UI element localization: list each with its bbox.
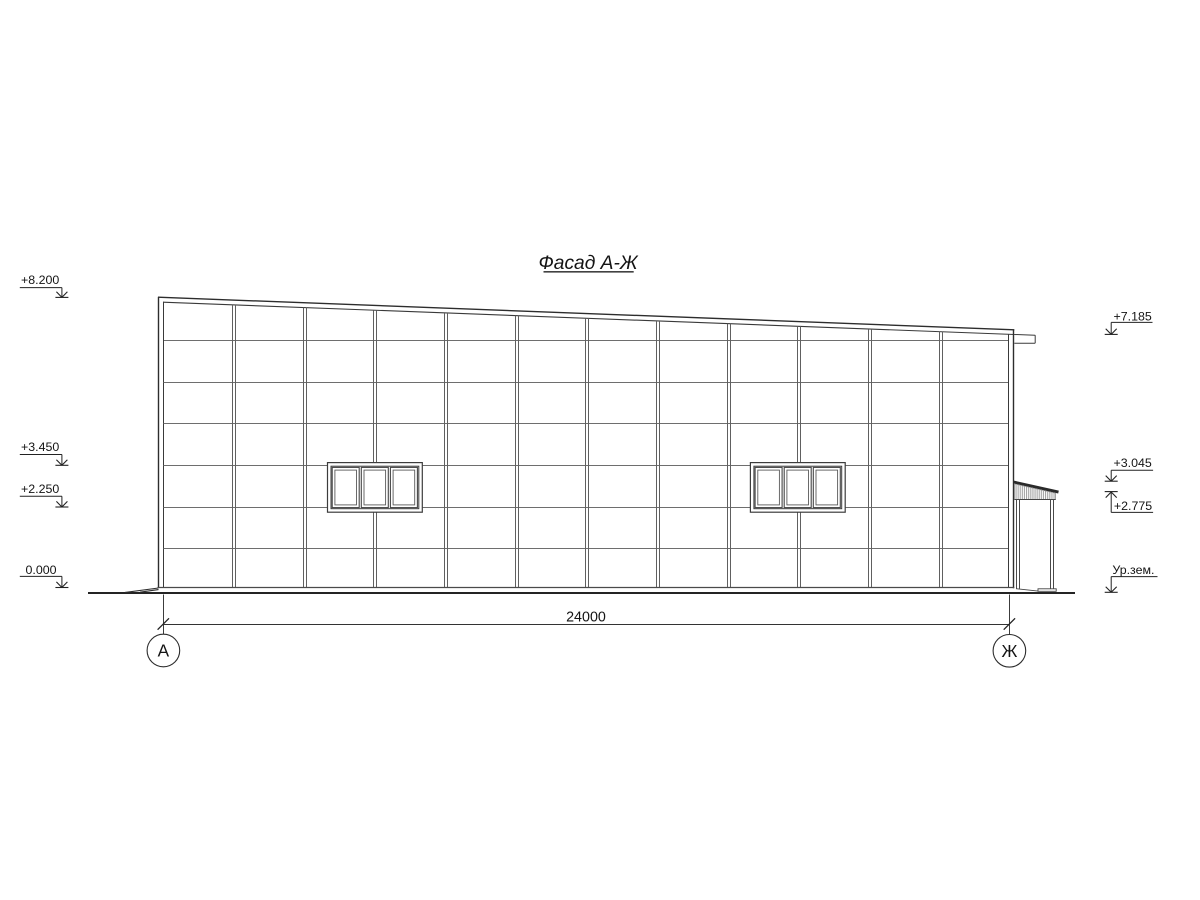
svg-text:+3.045: +3.045 (1114, 456, 1152, 470)
svg-text:Ур.зем.: Ур.зем. (1112, 563, 1154, 577)
svg-text:+3.450: +3.450 (21, 440, 59, 454)
svg-text:+8.200: +8.200 (21, 273, 59, 287)
svg-text:24000: 24000 (566, 609, 606, 625)
svg-text:Ж: Ж (1001, 641, 1017, 661)
svg-text:0.000: 0.000 (26, 563, 57, 577)
svg-text:Фасад А-Ж: Фасад А-Ж (539, 253, 639, 274)
svg-text:А: А (158, 641, 170, 661)
svg-text:+2.775: +2.775 (1114, 499, 1152, 513)
svg-text:+7.185: +7.185 (1114, 309, 1152, 323)
svg-text:+2.250: +2.250 (21, 482, 59, 496)
